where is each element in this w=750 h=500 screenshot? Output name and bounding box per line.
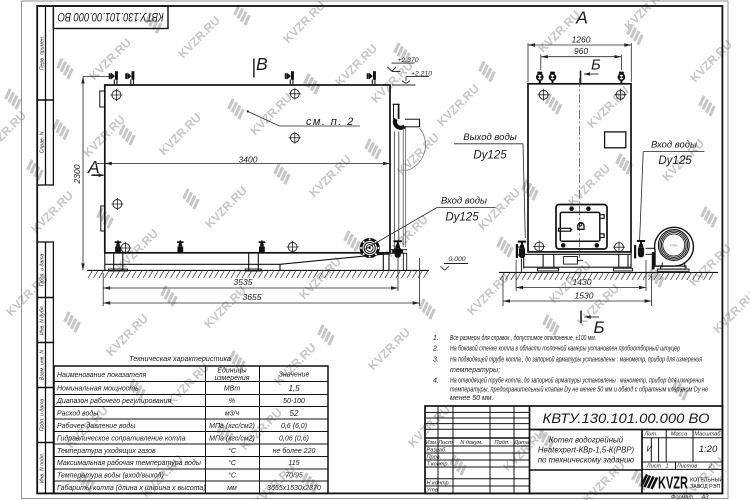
- svg-text:Температура уходящих газов: Температура уходящих газов: [57, 447, 156, 455]
- svg-text:Н.контр.: Н.контр.: [427, 481, 451, 487]
- svg-text:КОТЕЛЬНЫЙ: КОТЕЛЬНЫЙ: [690, 476, 723, 484]
- svg-text:А: А: [575, 8, 588, 28]
- svg-text:0,06 (0,6): 0,06 (0,6): [279, 435, 309, 442]
- svg-text:Dy125: Dy125: [473, 150, 507, 162]
- svg-text:Подп. и дата: Подп. и дата: [40, 253, 46, 286]
- svg-text:Листов: Листов: [676, 464, 697, 470]
- svg-text:°С: °С: [228, 447, 237, 455]
- svg-text:Котел водогрейный: Котел водогрейный: [549, 436, 624, 445]
- svg-text:А3: А3: [701, 495, 710, 500]
- svg-text:Изм.: Изм.: [426, 440, 438, 446]
- svg-text:Значение: Значение: [279, 372, 310, 379]
- svg-text:мм: мм: [227, 485, 237, 492]
- svg-text:1530: 1530: [575, 290, 594, 300]
- svg-text:КВТУ.130.101.00.000 ВО: КВТУ.130.101.00.000 ВО: [543, 410, 710, 426]
- svg-text:На боковой стенке котла в обла: На боковой стенке котла в области топочн…: [450, 345, 680, 353]
- svg-text:KVZR.RU: KVZR.RU: [271, 340, 319, 388]
- svg-text:%: %: [229, 398, 235, 405]
- svg-text:3535: 3535: [234, 277, 253, 287]
- svg-text:Лист: Лист: [646, 464, 662, 470]
- svg-text:А: А: [87, 157, 100, 177]
- svg-text:Расход воды: Расход воды: [57, 409, 99, 417]
- svg-text:Выход воды: Выход воды: [463, 132, 516, 143]
- svg-text:И: И: [647, 445, 653, 454]
- svg-text:52: 52: [290, 409, 299, 418]
- svg-text:менее 50 мм.: менее 50 мм.: [450, 395, 494, 402]
- svg-text:1.: 1.: [433, 335, 439, 342]
- svg-text:3655: 3655: [243, 292, 262, 302]
- svg-text:Лит.: Лит.: [643, 432, 657, 438]
- svg-text:KVZR.RU: KVZR.RU: [621, 0, 669, 33]
- svg-text:KVZR.RU: KVZR.RU: [464, 270, 512, 318]
- svg-text:не более 220: не более 220: [273, 447, 316, 455]
- svg-text:Инв. N дубл.: Инв. N дубл.: [40, 305, 46, 335]
- svg-text:Dy125: Dy125: [445, 212, 479, 224]
- svg-text:Справ. N: Справ. N: [40, 131, 46, 153]
- svg-text:ЗАВОД РЭП: ЗАВОД РЭП: [690, 484, 720, 490]
- svg-text:Номинальная мощность: Номинальная мощность: [57, 386, 139, 393]
- svg-text:KVZR.RU: KVZR.RU: [103, 311, 151, 359]
- svg-text:Единицы: Единицы: [217, 367, 247, 375]
- svg-text:KVZR.RU: KVZR.RU: [434, 81, 482, 129]
- svg-text:Температура воды (вход/выход): Температура воды (вход/выход): [57, 472, 164, 480]
- svg-text:KVZR.RU: KVZR.RU: [28, 188, 76, 236]
- svg-text:Подп.: Подп.: [495, 440, 510, 446]
- svg-text:МВт: МВт: [224, 386, 241, 393]
- svg-text:50-100: 50-100: [283, 398, 305, 405]
- svg-text:Все размеры для справок , допу: Все размеры для справок , допустимое отк…: [450, 334, 596, 342]
- svg-text:Гидравлическое сопративление к: Гидравлическое сопративление котла: [57, 434, 186, 442]
- svg-text:KVZR.RU: KVZR.RU: [0, 108, 29, 156]
- svg-text:измерения: измерения: [214, 375, 249, 382]
- svg-text:КЗВк: КЗВк: [670, 244, 678, 248]
- svg-text:1430: 1430: [573, 277, 592, 287]
- svg-text:Т.контр.: Т.контр.: [427, 462, 450, 468]
- svg-text:1:20: 1:20: [699, 444, 718, 455]
- svg-text:На отводящей трубе котла ,до з: На отводящей трубе котла ,до запорной ар…: [450, 377, 704, 385]
- svg-text:Диапазон рабочего регулировани: Диапазон рабочего регулирования: [56, 397, 172, 405]
- svg-text:температуры, предохранительный: температуры, предохранительный клапан Dy…: [450, 386, 708, 394]
- svg-text:3.: 3.: [433, 357, 439, 364]
- svg-text:2300: 2300: [72, 164, 82, 184]
- svg-text:Подп. и дата: Подп. и дата: [40, 399, 46, 432]
- svg-text:KVZR.RU: KVZR.RU: [365, 325, 413, 373]
- svg-text:Габариты котла (длина х ширина: Габариты котла (длина х ширина х высота): [57, 484, 206, 492]
- svg-text:Утв.: Утв.: [426, 488, 440, 494]
- svg-text:1: 1: [665, 464, 668, 470]
- svg-text:KVZR.RU: KVZR.RU: [710, 288, 750, 336]
- svg-text:115: 115: [288, 460, 299, 467]
- svg-text:На подводящей трубе котла , д: На подводящей трубе котла , до запорной …: [450, 356, 702, 364]
- svg-text:Рабочее давление воды: Рабочее давление воды: [57, 422, 136, 430]
- svg-text:Heatexpert-КВр-1,5-К(РВР): Heatexpert-КВр-1,5-К(РВР): [538, 446, 635, 455]
- svg-text:Техническая характеристика: Техническая характеристика: [129, 354, 231, 363]
- svg-text:Лист: Лист: [437, 440, 453, 446]
- svg-text:Формат: Формат: [671, 495, 694, 500]
- svg-text:KVZR.RU: KVZR.RU: [475, 185, 523, 233]
- svg-text:Масса: Масса: [671, 432, 688, 438]
- svg-text:0.000: 0.000: [449, 256, 466, 263]
- svg-text:м3/ч: м3/ч: [225, 410, 240, 417]
- svg-text:Наименование показателя: Наименование показателя: [57, 372, 147, 379]
- svg-text:0,6 (6,0): 0,6 (6,0): [281, 423, 307, 430]
- svg-text:KVZR.RU: KVZR.RU: [584, 83, 632, 131]
- svg-text:960: 960: [574, 46, 588, 56]
- svg-text:+2.370: +2.370: [398, 57, 419, 64]
- svg-text:N докум.: N докум.: [460, 440, 483, 446]
- svg-text:KVZR.RU: KVZR.RU: [175, 13, 223, 61]
- svg-text:KVZR.RU: KVZR.RU: [565, 161, 613, 209]
- svg-text:Dy125: Dy125: [658, 155, 692, 167]
- svg-text:Масштаб: Масштаб: [694, 432, 721, 438]
- svg-text:Максимальная рабочая температу: Максимальная рабочая температура воды: [57, 459, 202, 467]
- svg-text:Пров.: Пров.: [427, 455, 442, 461]
- svg-text:МПа (кгс/см2): МПа (кгс/см2): [209, 435, 255, 442]
- svg-text:2.: 2.: [432, 346, 439, 353]
- svg-text:°С: °С: [228, 459, 237, 467]
- svg-text:Инв. N подл.: Инв. N подл.: [40, 453, 46, 483]
- svg-text:В: В: [256, 54, 268, 74]
- svg-text:температуры;: температуры;: [450, 367, 500, 374]
- svg-text:Вход воды: Вход воды: [651, 140, 697, 151]
- svg-text:по техническому заданию: по техническому заданию: [538, 456, 634, 465]
- svg-text:КВТУ.130.101.00.000 ВО: КВТУ.130.101.00.000 ВО: [58, 10, 164, 24]
- svg-text:KVZR.RU: KVZR.RU: [394, 130, 442, 178]
- svg-text:°С: °С: [228, 472, 237, 480]
- svg-text:4.: 4.: [433, 378, 439, 385]
- svg-text:3400: 3400: [239, 154, 258, 164]
- svg-text:Б: Б: [591, 57, 601, 74]
- svg-text:1260: 1260: [572, 34, 591, 44]
- svg-text:70/95: 70/95: [285, 473, 303, 480]
- svg-text:KVZR.RU: KVZR.RU: [156, 110, 204, 158]
- svg-text:Перв. примен.: Перв. примен.: [40, 36, 46, 70]
- svg-text:3655х1530х2370: 3655х1530х2370: [267, 485, 321, 492]
- svg-text:1,5: 1,5: [288, 384, 300, 393]
- svg-text:Вход воды: Вход воды: [441, 196, 487, 207]
- svg-text:+2.210: +2.210: [411, 71, 432, 78]
- svg-text:KVZR.RU: KVZR.RU: [164, 360, 212, 408]
- svg-text:KVZR.RU: KVZR.RU: [202, 183, 250, 231]
- svg-text:KVZR.RU: KVZR.RU: [306, 152, 354, 200]
- svg-text:KVZR: KVZR: [658, 473, 688, 493]
- svg-text:Взам. инв. N: Взам. инв. N: [40, 350, 46, 380]
- svg-text:Дата: Дата: [513, 440, 529, 446]
- svg-text:Разраб.: Разраб.: [427, 448, 447, 454]
- svg-text:KVZR.RU: KVZR.RU: [201, 283, 249, 331]
- svg-text:МПа (кгс/см2): МПа (кгс/см2): [209, 423, 255, 430]
